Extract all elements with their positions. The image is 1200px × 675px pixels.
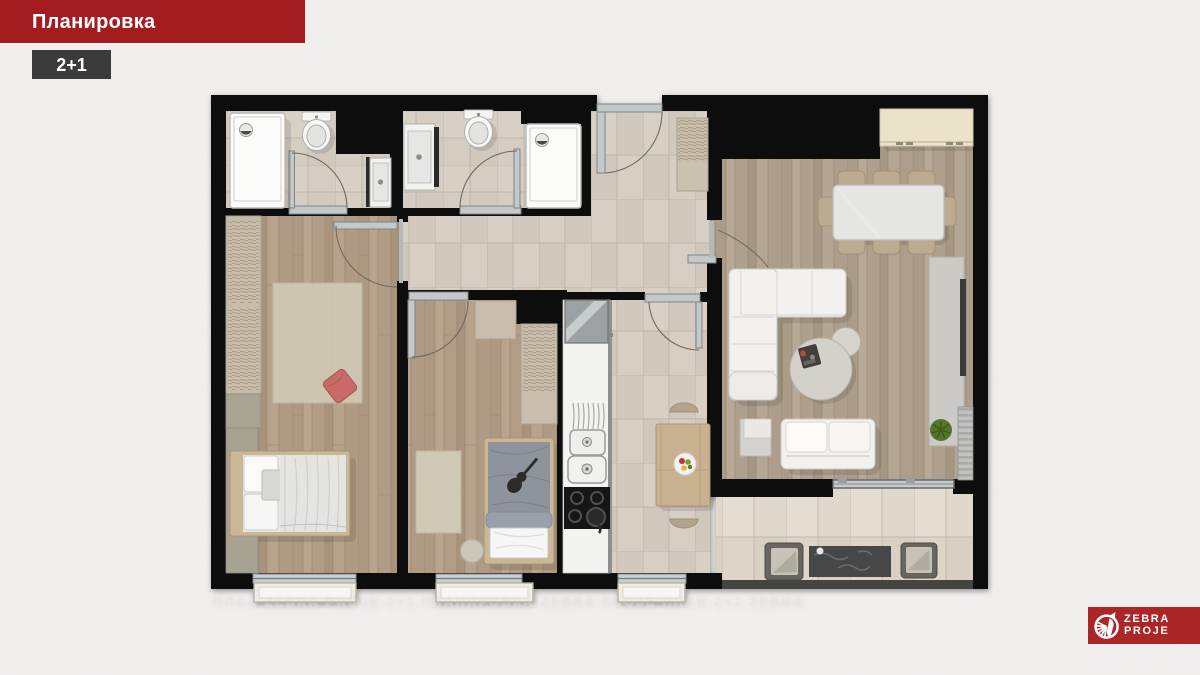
svg-text:ПЛАН ZEBRA PROJE 2+1 ПЛАНИРОВК: ПЛАН ZEBRA PROJE 2+1 ПЛАНИРОВКА ZEBRA PR… xyxy=(213,595,805,609)
